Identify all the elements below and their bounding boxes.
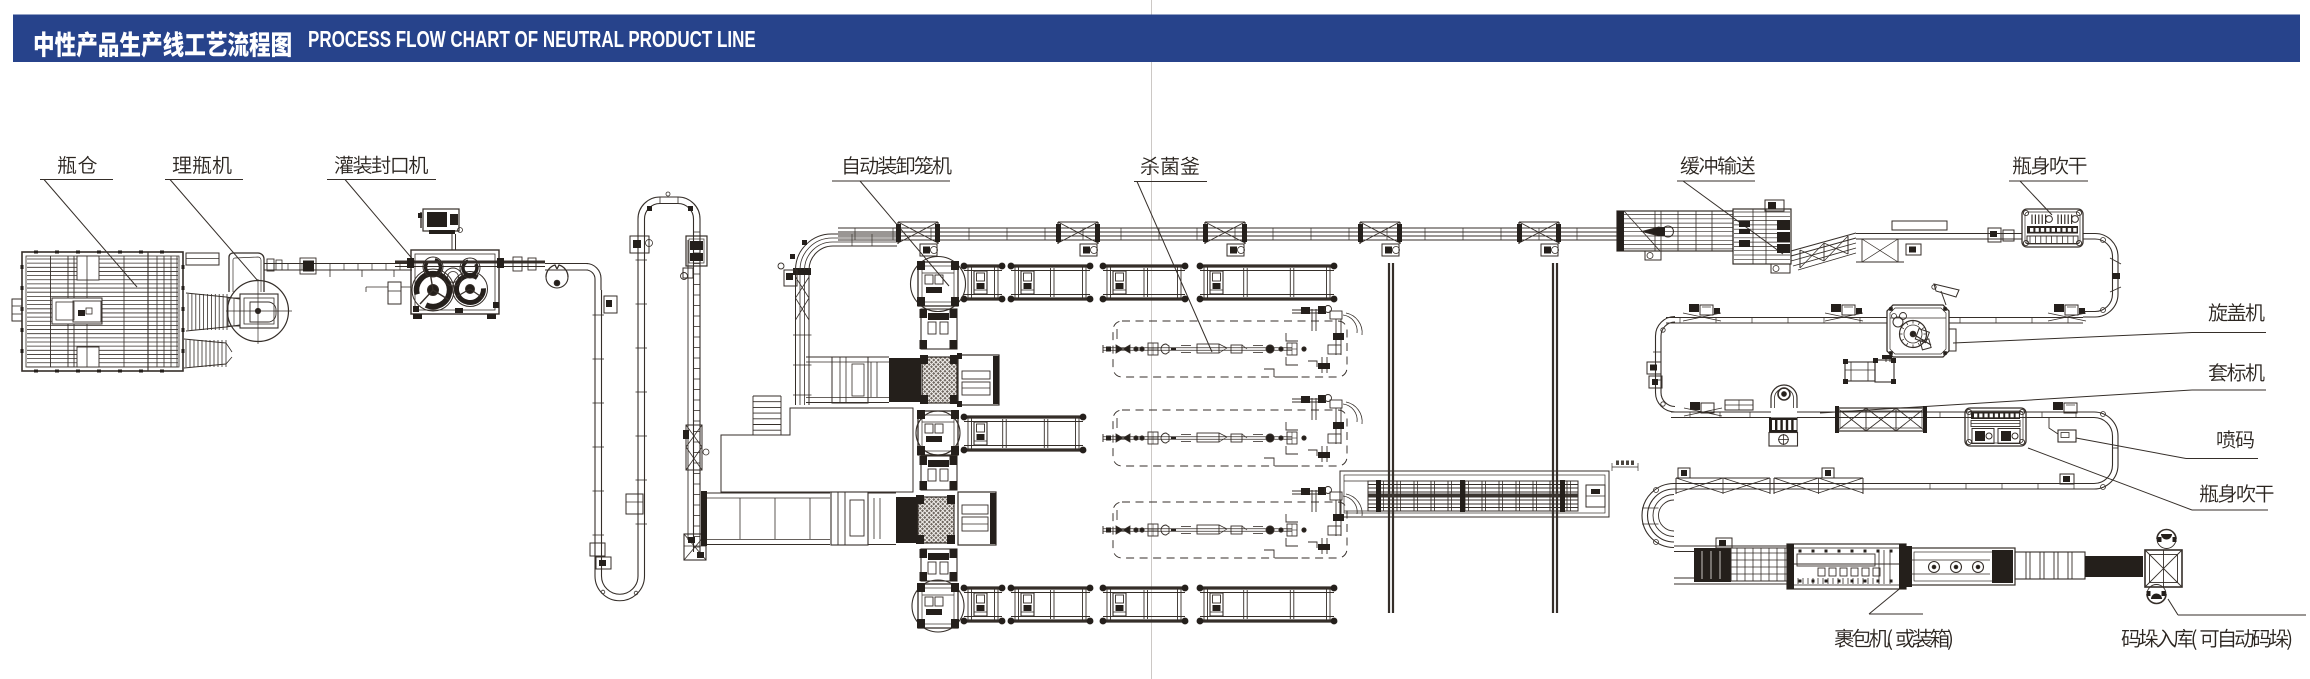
- svg-text:PROCESS FLOW CHART OF NEUTRAL: PROCESS FLOW CHART OF NEUTRAL PRODUCT LI…: [308, 26, 756, 52]
